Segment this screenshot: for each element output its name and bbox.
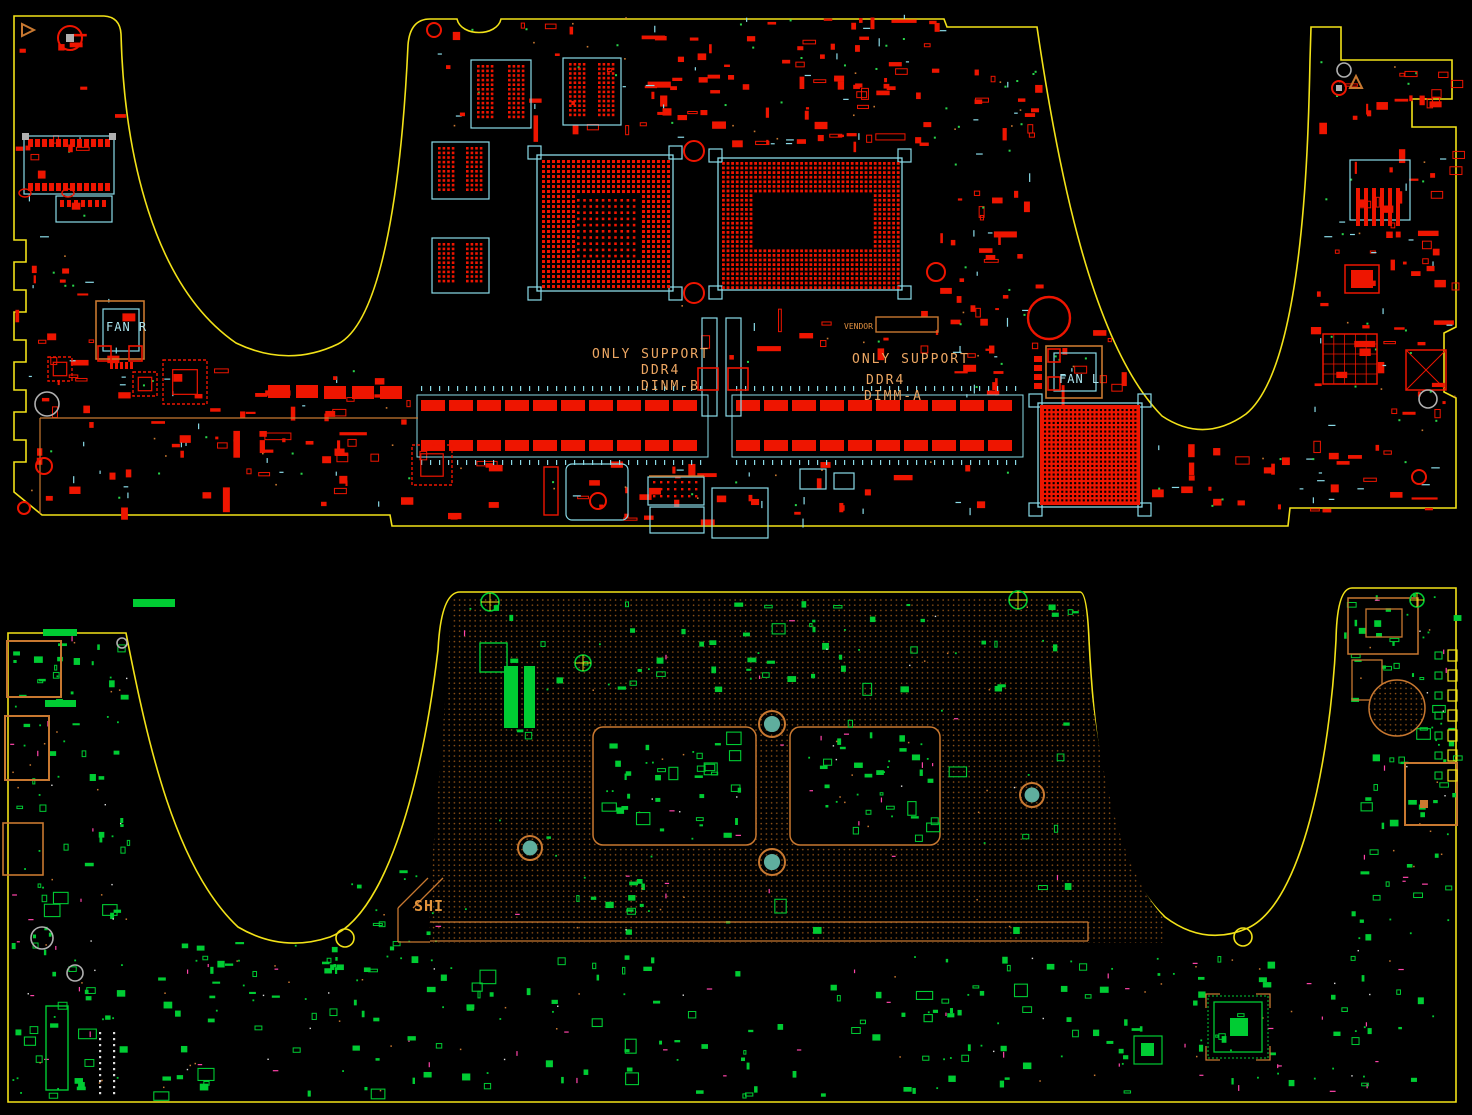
shi-label: SHI [414, 897, 444, 915]
bottom-board-components [3, 591, 1462, 1100]
boardview-screen: ONLY SUPPORT DDR4 DINM-B ONLY SUPPORT DD… [0, 0, 1472, 1115]
bottom-qfp-chips [1134, 994, 1270, 1064]
dimm-b-label-line3: DINM-B [641, 379, 700, 394]
thermal-stipple-region [429, 596, 1163, 943]
fan-right-label: FAN R [106, 320, 147, 334]
dimm-a-label-line3: DIMM-A [864, 389, 923, 404]
left-edge-connectors [19, 133, 116, 222]
dimm-a-label-line1: ONLY SUPPORT [852, 352, 970, 367]
left-io-ports [3, 599, 175, 1094]
dimm-b-socket [417, 386, 708, 465]
right-block-parts [1323, 160, 1446, 390]
vrm-choke-row [268, 385, 402, 399]
fan-right-connector [96, 301, 144, 369]
vendor-label: VENDOR [844, 322, 873, 331]
gpu-keepout-right [790, 727, 940, 845]
fan-left-label: FAN L [1059, 372, 1100, 386]
dimm-b-label-line2: DDR4 [641, 363, 680, 378]
dimm-b-label-line1: ONLY SUPPORT [592, 347, 710, 362]
qfn-chips [48, 357, 452, 485]
dimm-sockets [417, 318, 1023, 465]
bottom-board-view: SHI [3, 588, 1462, 1102]
pcb-boardview-canvas: ONLY SUPPORT DDR4 DINM-B ONLY SUPPORT DD… [0, 0, 1472, 1115]
cpu-bga [709, 149, 911, 299]
dimm-a-label-line2: DDR4 [866, 373, 905, 388]
top-board-view: ONLY SUPPORT DDR4 DINM-B ONLY SUPPORT DD… [14, 15, 1464, 538]
pch-bga [1029, 394, 1151, 516]
top-board-components [15, 15, 1464, 538]
vendor-box [876, 317, 938, 332]
top-board-outline [14, 16, 1456, 526]
gpu-bga [528, 146, 682, 300]
